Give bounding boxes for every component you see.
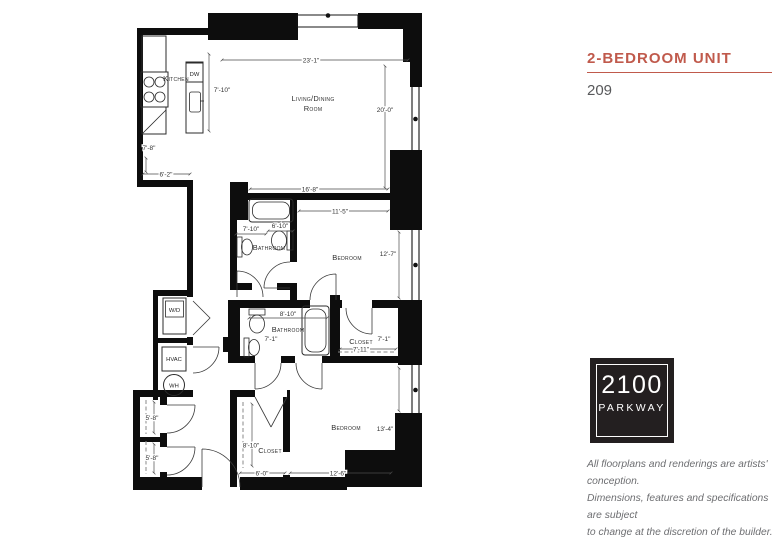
- dimension-lines: [143, 54, 408, 473]
- dim-kitchen-left: 7'-8": [143, 145, 157, 152]
- label-hvac: HVAC: [166, 357, 182, 363]
- bathroom2-door: [255, 363, 281, 389]
- disclaimer-text: All floorplans and renderings are artist…: [587, 456, 777, 541]
- dim-kitchen-bottom: 6'-2": [160, 172, 174, 179]
- island-sink: [190, 92, 201, 112]
- wd-bifold-door: [193, 301, 210, 335]
- washer-dryer-box: [163, 298, 186, 334]
- window-mullion-dot: [413, 117, 418, 122]
- label-washer-dryer: W/D: [169, 308, 180, 314]
- dim-bedroom2-width: 12'-6": [330, 471, 347, 478]
- window-mullion-dot: [413, 388, 418, 393]
- dim-bedroom2-height: 13'-4": [377, 426, 394, 433]
- disclaimer-line: Dimensions, features and specifications …: [587, 490, 777, 524]
- bathtub-inner: [253, 202, 290, 219]
- floorplan-drawing: Kitchen DW Living/Dining Room Bathroom B…: [0, 0, 560, 517]
- toilet-tank: [249, 309, 265, 315]
- disclaimer-line: to change at the discretion of the build…: [587, 524, 777, 541]
- bathtub: [249, 199, 293, 222]
- dim-living-width: 23'-1": [303, 58, 320, 65]
- closet1-door: [346, 308, 372, 334]
- dim-bathroom2-width: 8'-10": [280, 311, 297, 318]
- label-closet2: Closet: [258, 446, 282, 455]
- bathtub-inner: [305, 309, 326, 352]
- disclaimer-line: All floorplans and renderings are artist…: [587, 456, 777, 490]
- label-kitchen: Kitchen: [163, 74, 189, 83]
- brand-logo: 2100 PARKWAY: [590, 358, 674, 443]
- unit-number: 209: [587, 82, 612, 99]
- floorplan: Kitchen DW Living/Dining Room Bathroom B…: [0, 0, 560, 517]
- sink: [249, 340, 260, 356]
- burner: [144, 77, 154, 87]
- dim-bathroom2-height: 7'-1": [265, 336, 279, 343]
- burner: [144, 92, 154, 102]
- dim-closet1-height: 7'-1": [378, 336, 392, 343]
- kitchen-cabinet: [142, 36, 166, 72]
- title-underline: [587, 72, 772, 73]
- kitchen-fixtures: [141, 36, 204, 134]
- burner: [155, 92, 165, 102]
- dim-bathroom1-width: 7'-10": [243, 226, 260, 233]
- dim-closet2-height: 8'-10": [243, 443, 260, 450]
- closet2-double-door: [255, 397, 287, 427]
- dim-upper-wall: 16'-8": [302, 187, 319, 194]
- counter-corner: [142, 110, 166, 134]
- dim-closet1-width: 7'-11": [353, 347, 370, 354]
- dim-hall-closet-b: 5'-8": [146, 455, 160, 462]
- logo-text-parkway: PARKWAY: [590, 402, 674, 414]
- label-bedroom2: Bedroom: [331, 423, 361, 432]
- label-bathroom2: Bathroom: [272, 325, 305, 334]
- page-title: 2-BEDROOM UNIT: [587, 50, 732, 67]
- label-bathroom1: Bathroom: [253, 243, 286, 252]
- hall-closet-a-door: [167, 405, 195, 433]
- dim-bedroom1-width: 11'-5": [332, 209, 349, 216]
- dim-hall-closet-a: 5'-8": [146, 415, 160, 422]
- sink: [242, 239, 253, 255]
- dim-closet2-width: 6'-0": [256, 471, 270, 478]
- label-bedroom1: Bedroom: [332, 253, 362, 262]
- hall-closet-b-door: [167, 447, 195, 475]
- label-dishwasher: DW: [190, 72, 200, 78]
- label-closet1: Closet: [349, 337, 373, 346]
- bedroom2-door: [296, 363, 322, 389]
- hvac-door: [193, 347, 219, 373]
- dim-living-height: 20'-0": [377, 107, 394, 114]
- dim-island-length: 7'-10": [214, 87, 231, 94]
- dim-bathroom1-inner: 6'-10": [272, 223, 289, 230]
- dim-bedroom1-height: 12'-7": [380, 251, 397, 258]
- logo-text-2100: 2100: [590, 371, 674, 400]
- window-mullion-dot: [413, 263, 418, 268]
- label-water-heater: WH: [169, 384, 179, 390]
- label-living-dining-2: Room: [304, 104, 323, 113]
- window-mullion-dot: [326, 13, 331, 18]
- label-living-dining: Living/Dining: [291, 94, 334, 103]
